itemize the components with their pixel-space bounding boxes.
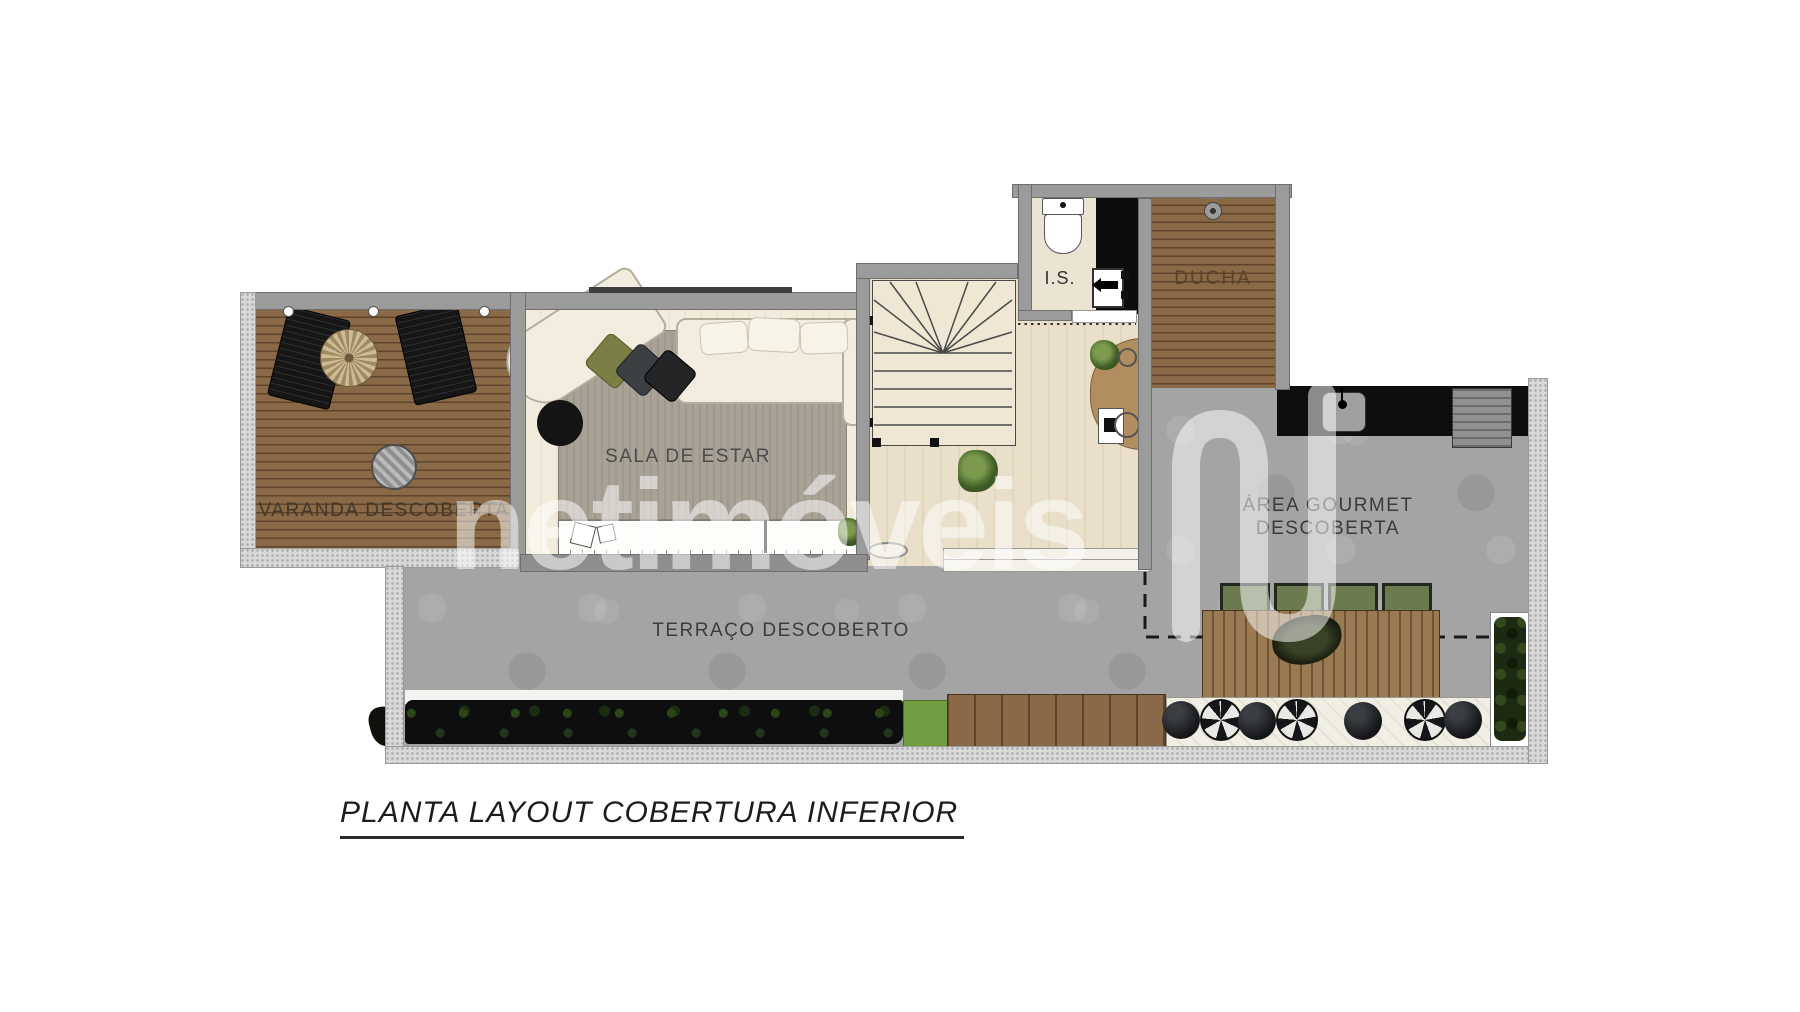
outer-wall <box>240 548 520 568</box>
deck-post <box>283 306 294 317</box>
white-pillow <box>699 320 749 355</box>
wall <box>856 263 870 560</box>
deck-post <box>479 306 490 317</box>
white-pillow <box>747 317 801 354</box>
pouf-patterned <box>1404 699 1446 741</box>
shower-head <box>1204 202 1222 220</box>
gourmet-label: ÁREA GOURMET DESCOBERTA <box>1242 494 1413 540</box>
plan-title: PLANTA LAYOUT COBERTURA INFERIOR <box>340 796 964 839</box>
vanity-item <box>1121 271 1129 279</box>
grass-patch <box>903 700 949 748</box>
wall <box>516 292 870 310</box>
console-decor <box>596 523 616 543</box>
deck-post <box>368 306 379 317</box>
staircase <box>872 280 1016 446</box>
toilet-bowl <box>1044 214 1082 254</box>
counter-sink <box>1322 392 1366 432</box>
stair-post <box>872 438 881 447</box>
toilet-button <box>1060 202 1066 208</box>
parasol <box>320 329 378 387</box>
wall-cap <box>589 287 792 293</box>
ducha-deck-floor <box>1150 196 1277 390</box>
pouf-patterned <box>1200 699 1242 741</box>
wood-deck-platform <box>947 694 1166 748</box>
floor-plan-page: VARANDA DESCOBERTA SALA DE ESTAR I.S. DU… <box>0 0 1800 1012</box>
round-black-table <box>537 400 583 446</box>
wall <box>240 292 516 310</box>
gourmet-label-line2: DESCOBERTA <box>1242 517 1413 540</box>
wall <box>856 263 1018 279</box>
varanda-label: VARANDA DESCOBERTA <box>259 500 510 522</box>
wall <box>1012 184 1292 198</box>
ducha-label: DUCHA <box>1174 268 1252 290</box>
round-side-table <box>371 444 417 490</box>
hedge-row <box>405 700 903 744</box>
vanity-item <box>1121 291 1129 299</box>
wall <box>1018 184 1032 321</box>
wall <box>520 554 868 572</box>
desk-stool <box>1114 412 1140 438</box>
pouf-black <box>1238 702 1276 740</box>
outer-wall <box>385 566 404 762</box>
grill <box>1452 388 1512 448</box>
stair-post <box>930 438 939 447</box>
sink-faucet <box>1100 281 1118 289</box>
counter-faucet <box>1338 400 1347 409</box>
pouf-black <box>1444 701 1482 739</box>
pouf-patterned <box>1276 699 1318 741</box>
bathroom-door-opening <box>1072 310 1137 323</box>
pouf-black <box>1162 701 1200 739</box>
outer-wall <box>385 746 1548 764</box>
wall <box>1018 310 1072 321</box>
wall <box>1138 198 1152 570</box>
desk-plant <box>1090 340 1120 370</box>
outer-wall <box>240 292 256 568</box>
floor-bowl <box>868 542 908 559</box>
console-divider <box>764 520 767 553</box>
wall <box>510 292 526 556</box>
outer-wall <box>1528 378 1548 764</box>
gourmet-label-line1: ÁREA GOURMET <box>1242 494 1413 517</box>
white-pillow <box>799 321 848 355</box>
bathroom-label: I.S. <box>1044 268 1075 289</box>
planter-hedge <box>1494 617 1526 741</box>
glass <box>1118 348 1137 367</box>
terrace-step <box>943 559 1150 572</box>
sala-label: SALA DE ESTAR <box>605 446 771 468</box>
wall <box>1275 184 1290 390</box>
pouf-black <box>1344 702 1382 740</box>
terrace-label: TERRAÇO DESCOBERTO <box>652 620 910 642</box>
